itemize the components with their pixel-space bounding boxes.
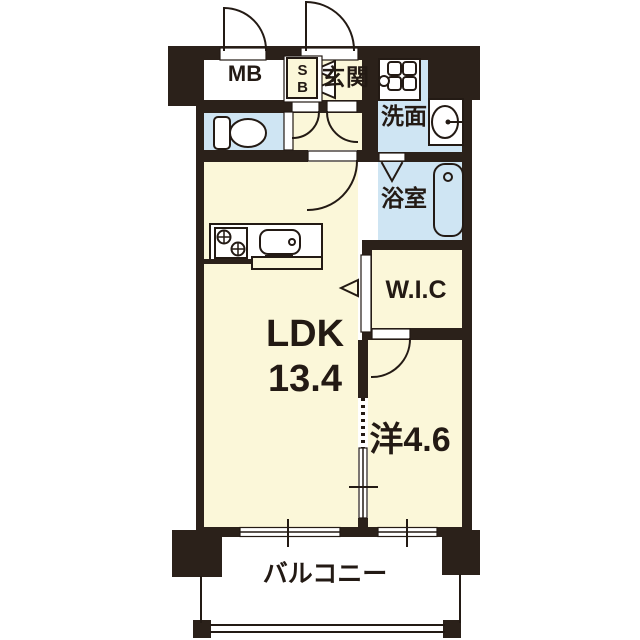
wic-label: W.I.C [370, 277, 462, 305]
left-wall [196, 106, 204, 537]
washing-machine-pan-icon [379, 59, 420, 100]
toilet-icon [214, 117, 266, 149]
mb-door-sill [220, 48, 266, 60]
wash-basin-icon [429, 99, 463, 145]
basin-faucet-head [446, 120, 451, 125]
washer-detail-3 [388, 77, 401, 90]
toilet-door-leaf [284, 112, 293, 150]
washer-drain [379, 76, 389, 86]
mb-label: MB [204, 62, 286, 86]
top-right-pillar [428, 46, 480, 100]
hall-left-door-leaf [292, 101, 319, 112]
ldk-name: LDK [230, 312, 380, 357]
genkan-label: 玄関 [318, 65, 374, 90]
top-left-pillar [168, 46, 204, 106]
entry-door-arc [306, 2, 354, 50]
washer-detail-2 [403, 62, 416, 75]
hall-right-door-leaf [327, 101, 357, 112]
bathtub-icon [434, 164, 463, 236]
toilet-bowl [230, 119, 266, 147]
stove-burners-icon [215, 228, 247, 258]
right-wall [462, 100, 472, 537]
balcony-left-pillar [172, 530, 222, 577]
sb-label: SB [288, 60, 317, 98]
ldk-door-leaf [308, 151, 357, 161]
hall-ldk-wall-right [357, 150, 378, 162]
sink-drain [289, 239, 295, 245]
floor-plan: MB SB 玄関 洗面 浴室 W.I.C LDK 13.4 洋4.6 バルコニー [0, 0, 640, 640]
western-room-label: 洋4.6 [360, 422, 460, 459]
ldk-label: LDK 13.4 [230, 312, 380, 402]
balcony-rail-right-post [443, 620, 461, 638]
senmen-label: 洗面 [376, 104, 432, 129]
hall-ldk-wall-left [196, 150, 308, 162]
kitchen-counter [204, 224, 322, 269]
counter-edge [204, 259, 252, 264]
toilet-tank [214, 117, 230, 149]
washer-detail-1 [388, 62, 401, 75]
balcony-label: バルコニー [250, 561, 400, 589]
balcony-right-pillar [442, 530, 480, 575]
bathtub-faucet [444, 173, 452, 181]
bathroom-label: 浴室 [377, 186, 431, 211]
washer-detail-4 [403, 77, 416, 90]
bath-door-opening [379, 153, 405, 161]
bath-bottom-wall [362, 240, 472, 250]
mb-door-arc [224, 8, 266, 50]
counter-overhang [252, 257, 322, 269]
ldk-size: 13.4 [230, 357, 380, 402]
